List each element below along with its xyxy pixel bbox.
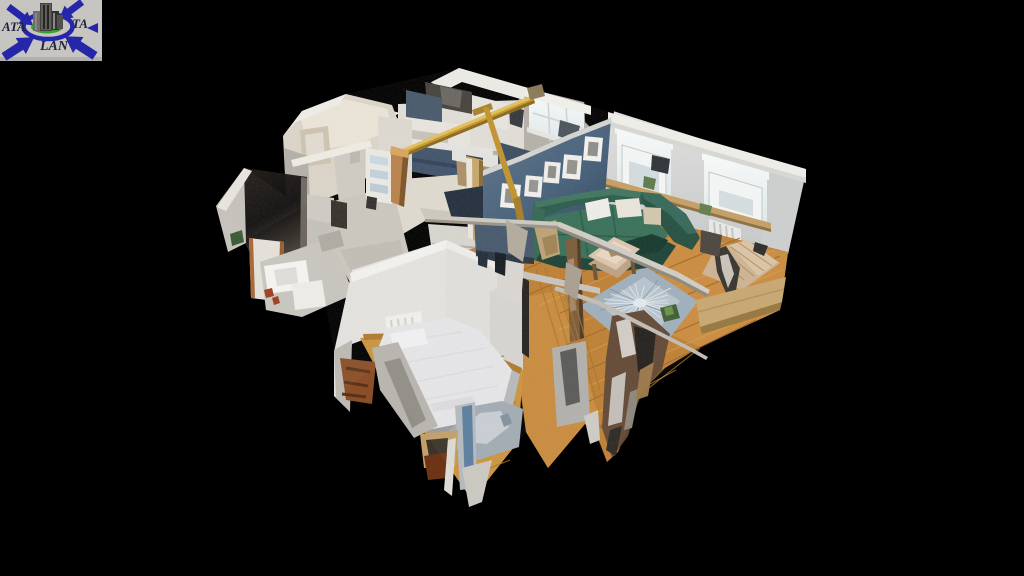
svg-text:ATA: ATA [1,19,26,34]
svg-text:TA: TA [72,16,88,31]
svg-text:LAN: LAN [39,39,69,54]
